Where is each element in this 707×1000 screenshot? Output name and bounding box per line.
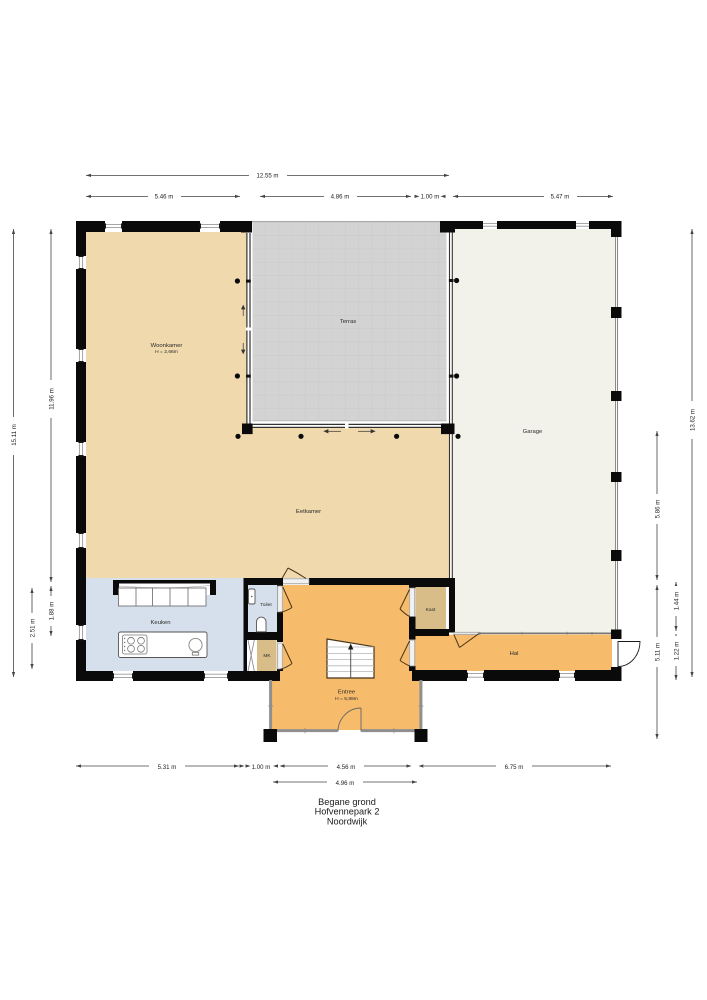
svg-text:2.51 m: 2.51 m (29, 619, 36, 638)
svg-text:Garage: Garage (523, 429, 543, 435)
svg-text:H = 5,89m: H = 5,89m (335, 696, 358, 702)
svg-text:5.11 m: 5.11 m (654, 643, 661, 661)
svg-text:11.96 m: 11.96 m (48, 388, 55, 410)
svg-text:Begane grond: Begane grond (318, 797, 376, 807)
svg-text:1.00 m: 1.00 m (421, 194, 440, 201)
svg-text:12.55 m: 12.55 m (256, 173, 278, 180)
svg-text:5.46 m: 5.46 m (155, 194, 174, 201)
svg-text:13.62 m: 13.62 m (689, 409, 696, 431)
svg-text:H = 2,66m: H = 2,66m (155, 349, 178, 355)
svg-text:4.96 m: 4.96 m (336, 780, 355, 787)
svg-text:5.47 m: 5.47 m (551, 194, 570, 201)
svg-text:5.31 m: 5.31 m (158, 764, 177, 771)
svg-text:4.86 m: 4.86 m (331, 194, 350, 201)
svg-text:Entree: Entree (338, 690, 356, 696)
svg-text:1.44 m: 1.44 m (673, 592, 680, 611)
svg-text:MK: MK (263, 653, 271, 659)
svg-text:1.88 m: 1.88 m (48, 602, 55, 621)
svg-text:6.75 m: 6.75 m (505, 764, 524, 771)
svg-text:Kast: Kast (426, 607, 436, 613)
svg-text:Hal: Hal (510, 651, 519, 657)
svg-text:Woonkamer: Woonkamer (151, 343, 183, 349)
svg-text:Noordwijk: Noordwijk (327, 816, 368, 826)
svg-text:Terras: Terras (340, 319, 356, 325)
svg-text:1.22 m: 1.22 m (673, 642, 680, 661)
svg-text:1.00 m: 1.00 m (252, 764, 271, 771)
svg-text:Keuken: Keuken (151, 620, 171, 626)
svg-text:5.86 m: 5.86 m (654, 500, 661, 519)
svg-text:Toilet: Toilet (260, 602, 272, 608)
svg-text:15.11 m: 15.11 m (11, 424, 18, 446)
svg-text:4.56 m: 4.56 m (337, 764, 356, 771)
svg-text:Eetkamer: Eetkamer (296, 509, 321, 515)
svg-text:Hofvennepark 2: Hofvennepark 2 (315, 807, 380, 817)
